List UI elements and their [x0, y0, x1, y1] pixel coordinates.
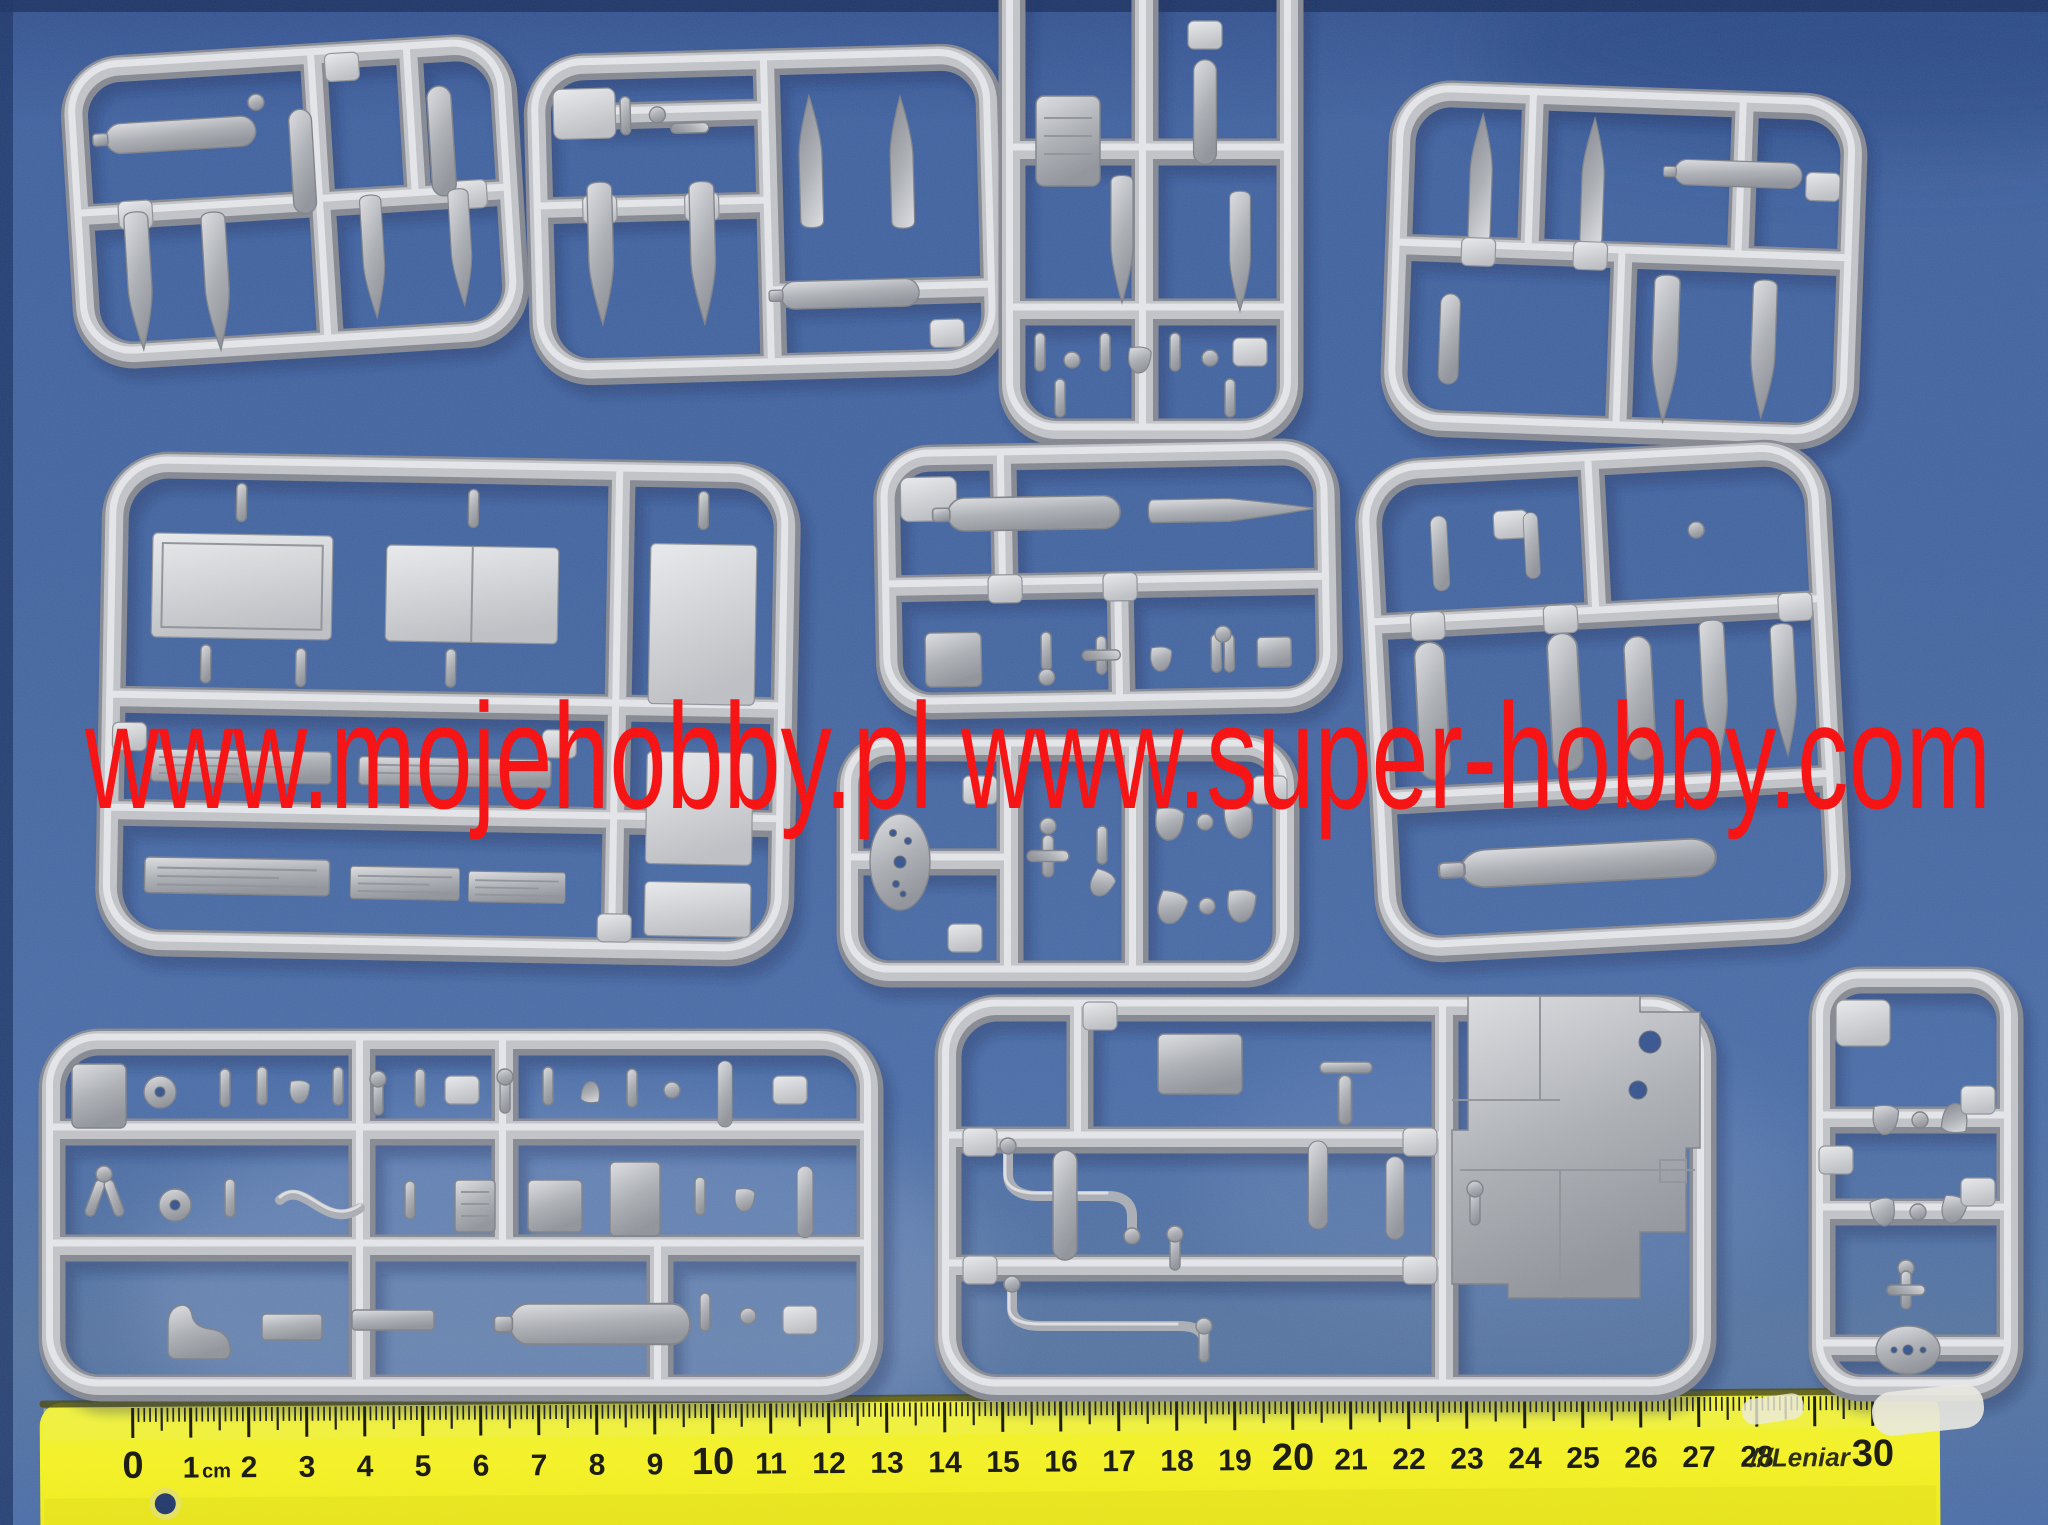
photo-model-kit-sprues: 01cm234567891011121314151617181920212223…	[0, 0, 2048, 1525]
photo-grain	[0, 0, 2048, 1525]
